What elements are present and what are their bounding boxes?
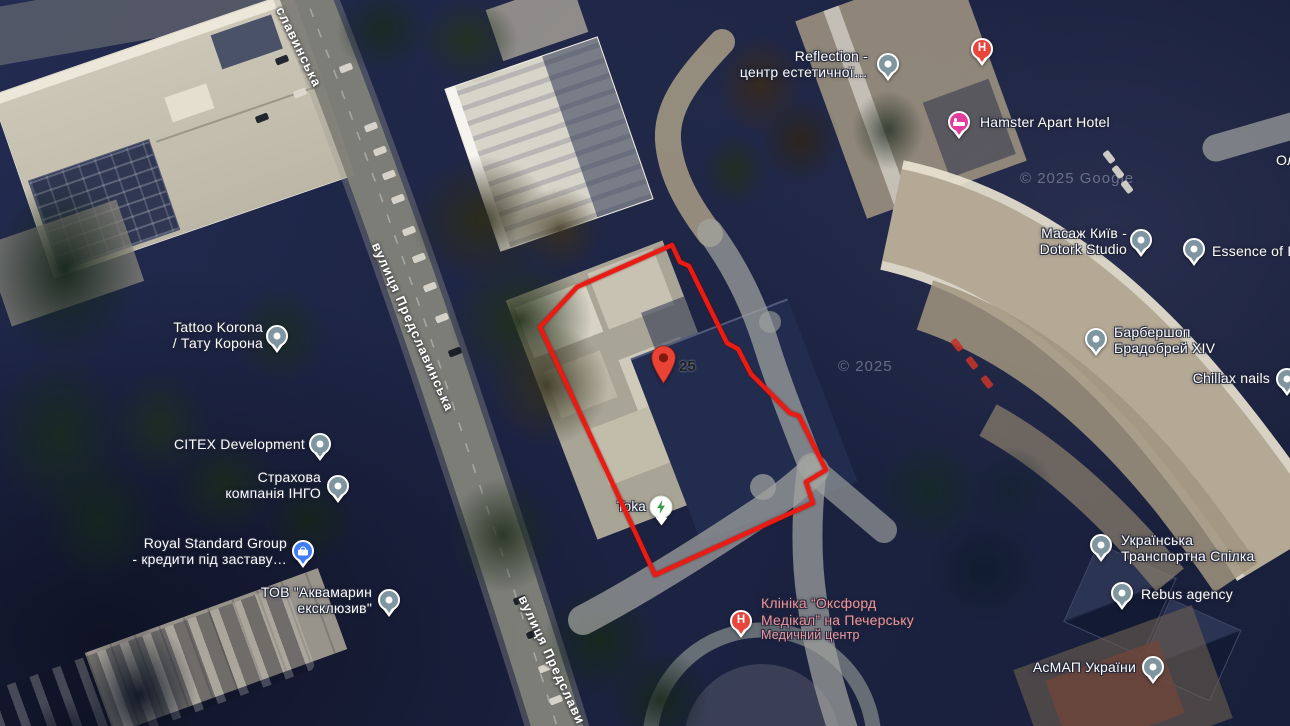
- street-label-0: славинська: [273, 4, 325, 89]
- poi-dot: [885, 61, 892, 68]
- poi-dot: [1119, 590, 1126, 597]
- bag-body: [298, 549, 308, 556]
- label-subtitle: Медичний центр: [761, 628, 914, 643]
- reflection-label[interactable]: Reflection -центр естетичної…: [740, 48, 868, 81]
- hamster-apart-hotel-label[interactable]: Hamster Apart Hotel: [980, 114, 1110, 131]
- strakhova-ingo-poi-dot-pin[interactable]: [327, 475, 349, 497]
- chillax-nails-label[interactable]: Chillax nails: [1193, 370, 1270, 387]
- label-line: центр естетичної…: [740, 64, 868, 81]
- label-line: CITEX Development: [174, 436, 305, 453]
- hamster-apart-hotel-hotel-bed-pin[interactable]: [948, 111, 970, 133]
- label-line: / Тату Корона: [173, 335, 263, 352]
- pin-tail: [978, 56, 986, 62]
- label-line: - кредити під заставу…: [132, 551, 287, 568]
- clipped-poi-label[interactable]: Ол: [1276, 152, 1290, 169]
- pin-tail: [385, 607, 393, 613]
- pin-tail: [1137, 247, 1145, 253]
- ukrainska-transportna-spilka-label[interactable]: УкраїнськаТранспортна Спілка: [1121, 532, 1255, 565]
- imagery-attribution: © 2025 Google: [1020, 170, 1134, 187]
- label-line: Клініка “Оксфорд: [761, 595, 914, 612]
- shopping-bag-icon: [298, 547, 308, 556]
- poi-dot: [1150, 664, 1157, 671]
- pin-tail: [1092, 346, 1100, 352]
- label-line: Українська: [1121, 532, 1255, 549]
- masazh-kyiv-dotork-poi-dot-pin[interactable]: [1130, 229, 1152, 251]
- street-label-1: вулиця Предславинська: [369, 240, 457, 414]
- poi-dot: [1191, 246, 1198, 253]
- essence-of-b-label[interactable]: Essence of B: [1212, 243, 1290, 260]
- citex-development-poi-dot-pin[interactable]: [309, 433, 331, 455]
- markers-layer: Reflection -центр естетичної…HHamster Ap…: [0, 0, 1290, 726]
- citex-development-label[interactable]: CITEX Development: [174, 436, 305, 453]
- label-line: ексклюзив": [261, 600, 372, 617]
- reflection-poi-dot-pin[interactable]: [877, 53, 899, 75]
- label-line: Hamster Apart Hotel: [980, 114, 1110, 131]
- address-marker-label: 25: [679, 358, 696, 375]
- asmap-ukrainy-label[interactable]: АсМАП України: [1033, 659, 1136, 676]
- essence-of-b-poi-dot-pin[interactable]: [1183, 238, 1205, 260]
- bed-pillow: [954, 118, 958, 122]
- pin-tail: [884, 71, 892, 77]
- poi-dot: [317, 441, 324, 448]
- rebus-agency-label[interactable]: Rebus agency: [1141, 586, 1233, 603]
- pin-tail: [1149, 674, 1157, 680]
- toka-ev-charger-label[interactable]: Toka: [617, 499, 646, 516]
- bed-icon: [953, 118, 965, 126]
- label-line: компанія ІНГО: [225, 485, 321, 502]
- strakhova-ingo-label[interactable]: Страховакомпанія ІНГО: [225, 469, 321, 502]
- imagery-attribution: © 2025: [838, 358, 893, 375]
- pin-tail: [334, 493, 342, 499]
- barbershop-bradobrei-poi-dot-pin[interactable]: [1085, 328, 1107, 350]
- tov-akvamaryn-poi-dot-pin[interactable]: [378, 589, 400, 611]
- poi-dot: [274, 333, 281, 340]
- tattoo-korona-poi-dot-pin[interactable]: [266, 325, 288, 347]
- address-marker-red-location-pin[interactable]: [650, 345, 677, 390]
- label-line: Dotork Studio: [1040, 241, 1127, 258]
- pin-tail: [1118, 600, 1126, 606]
- pin-tail: [657, 516, 665, 522]
- poi-dot: [386, 597, 393, 604]
- poi-dot: [1093, 336, 1100, 343]
- pin-tail: [1190, 256, 1198, 262]
- map-canvas[interactable]: Reflection -центр естетичної…HHamster Ap…: [0, 0, 1290, 726]
- chillax-nails-poi-dot-pin[interactable]: [1276, 368, 1290, 390]
- tattoo-korona-label[interactable]: Tattoo Korona/ Тату Корона: [173, 319, 263, 352]
- label-line: Барбершоп: [1114, 324, 1215, 341]
- oksford-medical-label[interactable]: Клініка “ОксфордМедікал” на ПечерськуМед…: [761, 595, 914, 643]
- lightning-icon: [656, 500, 667, 514]
- pin-tail: [273, 343, 281, 349]
- label-line: ТОВ "Аквамарин: [261, 584, 372, 601]
- label-line: Chillax nails: [1193, 370, 1270, 387]
- poi-dot: [1284, 376, 1290, 383]
- pin-tail: [1283, 386, 1290, 392]
- tov-akvamaryn-label[interactable]: ТОВ "Аквамаринексклюзив": [261, 584, 372, 617]
- asmap-ukrainy-poi-dot-pin[interactable]: [1142, 656, 1164, 678]
- ukrainska-transportna-spilka-poi-dot-pin[interactable]: [1090, 534, 1112, 556]
- oksford-medical-hospital-h-pin[interactable]: H: [730, 610, 752, 632]
- label-line: Tattoo Korona: [173, 319, 263, 336]
- poi-dot: [1138, 237, 1145, 244]
- toka-ev-charger-ev-lightning-badge[interactable]: [650, 496, 673, 519]
- poi-dot: [335, 483, 342, 490]
- pin-tail: [316, 451, 324, 457]
- barbershop-bradobrei-label[interactable]: БарбершопБрадобрей XIV: [1114, 324, 1215, 357]
- poi-dot: [1098, 542, 1105, 549]
- royal-standard-group-label[interactable]: Royal Standard Group- кредити під застав…: [132, 535, 287, 568]
- pin-tail: [737, 628, 745, 634]
- hospital-top-hospital-h-pin[interactable]: H: [971, 38, 993, 60]
- label-line: Брадобрей XIV: [1114, 340, 1215, 357]
- label-line: Toka: [617, 499, 646, 516]
- label-line: Reflection -: [740, 48, 868, 65]
- label-line: Royal Standard Group: [132, 535, 287, 552]
- rebus-agency-poi-dot-pin[interactable]: [1111, 582, 1133, 604]
- masazh-kyiv-dotork-label[interactable]: Масаж Київ -Dotork Studio: [1040, 225, 1127, 258]
- pin-tail: [955, 129, 963, 135]
- label-line: Essence of B: [1212, 243, 1290, 260]
- royal-standard-group-shopping-bag-pin[interactable]: [292, 540, 314, 562]
- label-line: Медікал” на Печерську: [761, 612, 914, 629]
- pin-tail: [1097, 552, 1105, 558]
- bed-mattress: [953, 122, 965, 127]
- pin-tail: [299, 558, 307, 564]
- label-line: Страхова: [225, 469, 321, 486]
- street-label-2: вулиця Предслави: [515, 593, 588, 726]
- label-line: Масаж Київ -: [1040, 225, 1127, 242]
- label-line: АсМАП України: [1033, 659, 1136, 676]
- label-line: Транспортна Спілка: [1121, 548, 1255, 565]
- label-line: Rebus agency: [1141, 586, 1233, 603]
